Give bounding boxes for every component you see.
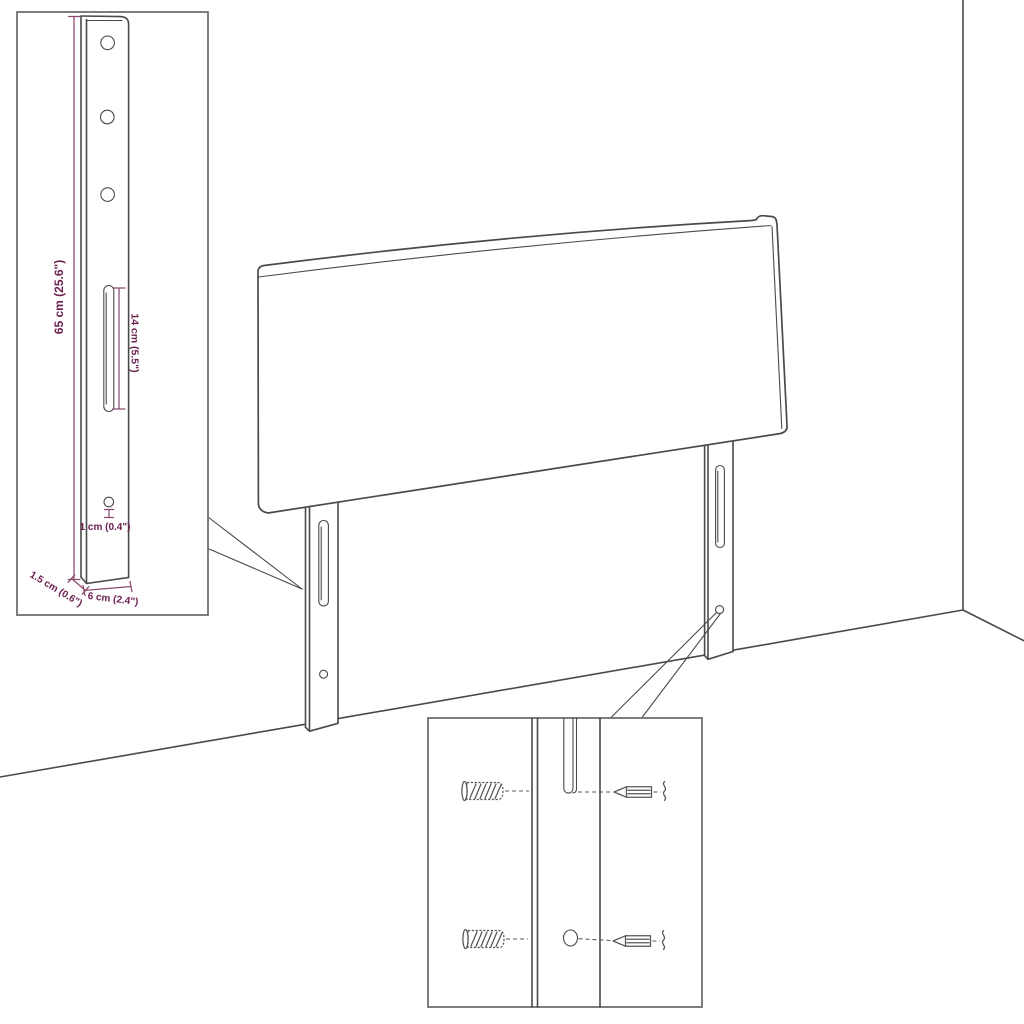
dimension-1cm-label: 1 cm (0.4") (80, 522, 131, 533)
callout-lines-right (607, 613, 721, 722)
left-leg-hole (320, 670, 328, 678)
callout-line-right-upper (607, 613, 717, 722)
floor-line-right (963, 610, 1024, 641)
right-leg (705, 441, 733, 660)
callout-line-right-lower (639, 614, 721, 722)
callout-line-left-lower (208, 549, 302, 590)
right-leg-bottom-edge (705, 652, 733, 660)
right-leg-slot (716, 466, 725, 548)
mounting-detail-inset (428, 718, 702, 1007)
left-leg (306, 502, 339, 731)
callout-line-left-upper (208, 517, 302, 589)
headboard-diagram: 65 cm (25.6") 14 cm (5.5") 1 cm (0.4") 1… (0, 0, 1024, 1024)
diagram-canvas: 65 cm (25.6") 14 cm (5.5") 1 cm (0.4") 1… (0, 0, 1024, 1024)
mounting-detail-inset-border (428, 718, 702, 1007)
left-leg-bottom-edge (306, 723, 339, 731)
dimension-14cm-label: 14 cm (5.5") (129, 313, 141, 372)
dimension-65cm-label: 65 cm (25.6") (52, 260, 66, 334)
left-leg-slot (319, 521, 329, 607)
leg-detail-inset: 65 cm (25.6") 14 cm (5.5") 1 cm (0.4") 1… (17, 12, 208, 615)
floor-line-left-segment-3 (733, 610, 963, 650)
callout-lines-left (208, 517, 302, 589)
floor-line-left-segment-1 (0, 724, 305, 777)
floor-line-left-segment-2 (338, 655, 704, 718)
